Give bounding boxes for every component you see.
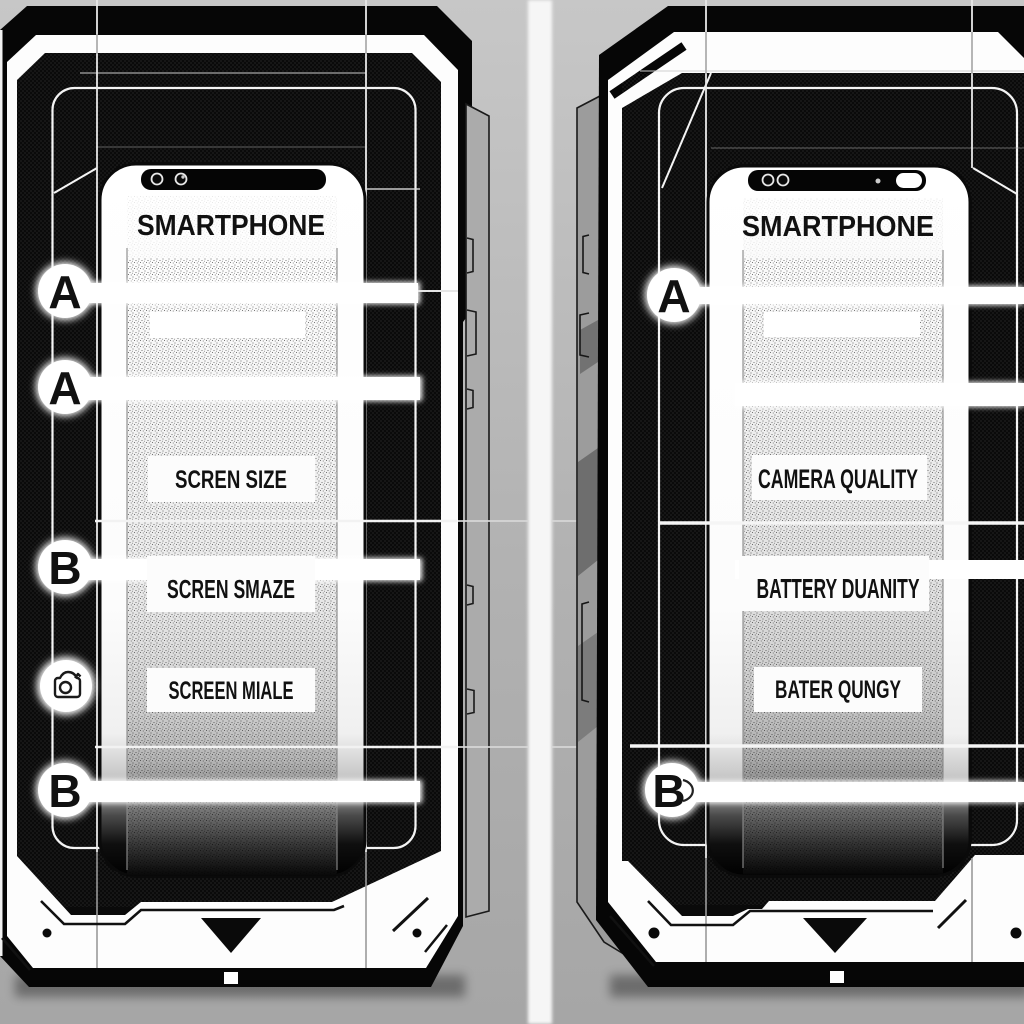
svg-text:A: A: [48, 266, 81, 318]
svg-text:SMARTPHONE: SMARTPHONE: [742, 211, 934, 243]
svg-text:BATTERY DUANITY: BATTERY DUANITY: [757, 573, 920, 604]
svg-text:SCREN SIZE: SCREN SIZE: [175, 466, 287, 494]
svg-text:CAMERA QUALITY: CAMERA QUALITY: [758, 464, 918, 494]
svg-text:B: B: [652, 765, 685, 817]
svg-text:SCREN SMAZE: SCREN SMAZE: [167, 574, 295, 604]
svg-text:BATER QUNGY: BATER QUNGY: [775, 676, 901, 704]
svg-text:B: B: [48, 765, 81, 817]
svg-text:SCREEN MIALE: SCREEN MIALE: [169, 677, 294, 705]
svg-text:B: B: [48, 542, 81, 594]
svg-text:A: A: [48, 362, 81, 414]
svg-text:SMARTPHONE: SMARTPHONE: [137, 210, 325, 242]
svg-text:A: A: [657, 270, 690, 322]
